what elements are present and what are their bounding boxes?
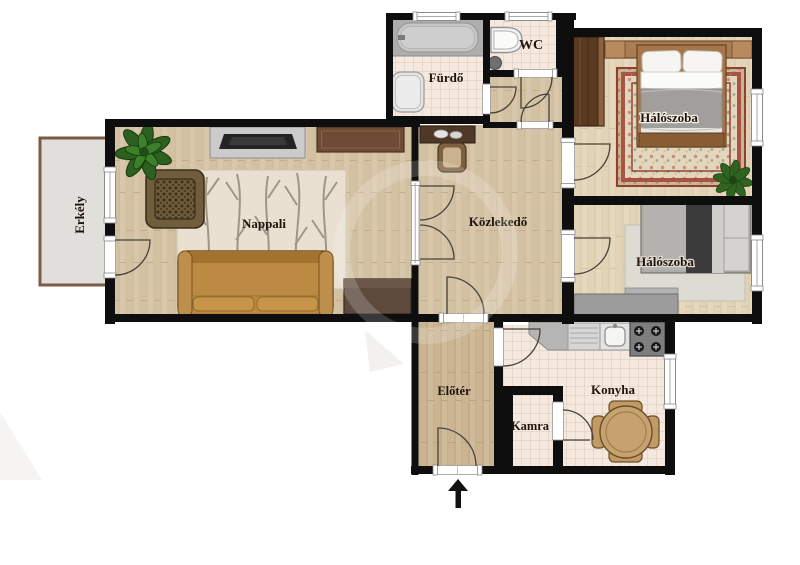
svg-text:Konyha: Konyha: [591, 382, 636, 397]
svg-text:Előtér: Előtér: [437, 384, 471, 398]
svg-text:WC: WC: [519, 38, 543, 53]
svg-text:Erkély: Erkély: [72, 196, 87, 234]
svg-text:Hálószoba: Hálószoba: [636, 254, 694, 269]
svg-text:Hálószoba: Hálószoba: [640, 110, 698, 125]
svg-text:Kamra: Kamra: [511, 419, 550, 433]
svg-text:Nappali: Nappali: [242, 216, 286, 231]
svg-text:Fürdő: Fürdő: [429, 70, 464, 85]
